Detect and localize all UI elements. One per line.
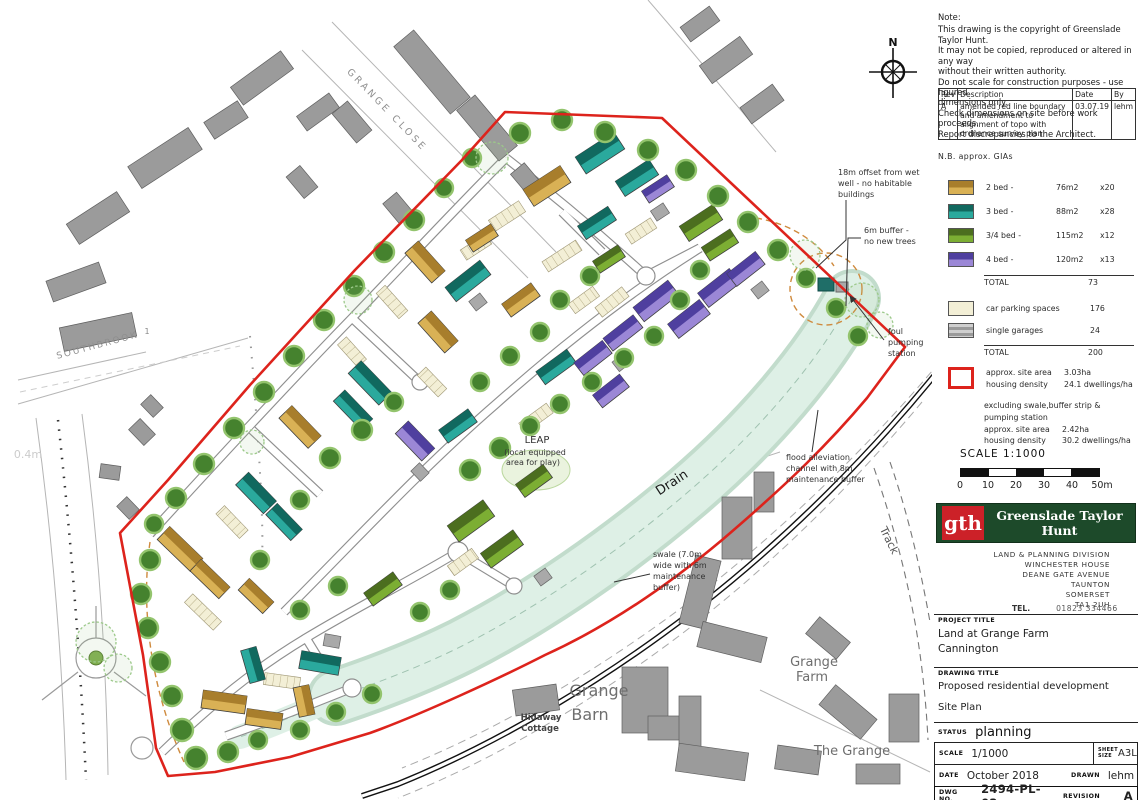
tree xyxy=(551,291,569,309)
tree xyxy=(162,686,182,706)
house-34bed xyxy=(364,572,403,606)
parking-total-row: TOTAL 200 xyxy=(984,345,1134,357)
tree xyxy=(194,454,214,474)
revision-label: REVISION xyxy=(1063,793,1100,800)
map-label: LEAP xyxy=(525,435,550,446)
status-row: STATUS planning xyxy=(934,722,1138,742)
tree xyxy=(385,393,403,411)
existing-tree-icon xyxy=(240,430,264,454)
tick-30: 30 xyxy=(1038,480,1050,491)
parking-strip xyxy=(488,201,525,232)
garage-swatch xyxy=(948,323,974,338)
tree xyxy=(166,488,186,508)
tree xyxy=(150,652,170,672)
density-label: housing density xyxy=(986,379,1064,391)
address-line: DEANE GATE AVENUE xyxy=(993,570,1110,580)
tree xyxy=(327,703,345,721)
2bed-swatch xyxy=(948,180,974,195)
house-34bed xyxy=(701,229,738,261)
garage xyxy=(650,203,669,221)
map-label: wide with 6m xyxy=(653,561,707,570)
tree xyxy=(145,515,163,533)
site-boundary-swatch xyxy=(948,367,974,389)
drawing-title-line2: Site Plan xyxy=(938,702,1134,713)
drawing-title-label: DRAWING TITLE xyxy=(938,670,1134,677)
existing-building xyxy=(394,30,470,114)
house-4bed xyxy=(395,421,434,461)
34bed-area: 115m2 xyxy=(1056,231,1100,240)
map-label: Barn xyxy=(571,705,608,724)
tree xyxy=(691,261,709,279)
2bed-label: 2 bed - xyxy=(986,183,1056,192)
legend-row-3bed: 3 bed - 88m2 x28 xyxy=(938,199,1136,223)
tree xyxy=(363,685,381,703)
garage xyxy=(469,293,487,311)
tree xyxy=(140,550,160,570)
34bed-label: 3/4 bed - xyxy=(986,231,1056,240)
house-3bed xyxy=(236,472,277,513)
dwellings-total-label: TOTAL xyxy=(984,278,1088,287)
existing-building xyxy=(740,84,784,124)
existing-building xyxy=(286,165,318,198)
legend: N.B. approx. GIAs 2 bed - 76m2 x20 3 bed… xyxy=(938,152,1136,447)
tick-10: 10 xyxy=(982,480,994,491)
dwg-number-row: DWG NO. 2494-PL-02 REVISION A xyxy=(934,786,1138,800)
date-col-header: Date xyxy=(1073,89,1112,101)
tree xyxy=(615,349,633,367)
map-label: 18m offset from wet xyxy=(838,168,919,177)
map-label: buffer) xyxy=(653,583,680,592)
parking-label: car parking spaces xyxy=(986,304,1090,313)
tree xyxy=(797,269,815,287)
excluding-note: excluding swale,buffer strip & pumping s… xyxy=(984,400,1136,423)
project-title-section: PROJECT TITLE Land at Grange Farm Cannin… xyxy=(934,614,1138,667)
tree xyxy=(435,179,453,197)
tree xyxy=(531,323,549,341)
tree xyxy=(501,347,519,365)
tree xyxy=(218,742,238,762)
existing-building xyxy=(66,192,129,245)
tree xyxy=(291,601,309,619)
site-area-value: 3.03ha xyxy=(1064,367,1091,379)
parking-strip xyxy=(216,506,248,539)
existing-building xyxy=(204,101,248,140)
4bed-label: 4 bed - xyxy=(986,255,1056,264)
scale-row: SCALE 1/1000 SHEET SIZE A3L xyxy=(934,742,1138,764)
parking-strip xyxy=(568,286,599,313)
excl-site-area-value: 2.42ha xyxy=(1062,424,1089,436)
map-label: maintenance xyxy=(653,572,705,581)
map-label: swale (7.0m xyxy=(653,550,702,559)
gth-abbr: gth xyxy=(944,511,982,535)
density-row: housing density 24.1 dwellings/ha xyxy=(986,379,1133,391)
rev-col-header: Rev xyxy=(939,89,958,101)
by-cell: lehm xyxy=(1112,101,1136,140)
tree xyxy=(254,382,274,402)
existing-building xyxy=(297,93,340,131)
map-label: Hidaway xyxy=(521,713,562,723)
sheet-size-value: A3L xyxy=(1118,748,1137,759)
map-label: 0.4m xyxy=(14,448,42,461)
existing-building xyxy=(129,419,156,446)
tree xyxy=(827,299,845,317)
date-value: October 2018 xyxy=(967,770,1039,782)
existing-building xyxy=(46,262,106,302)
by-col-header: By xyxy=(1112,89,1136,101)
map-label: 1 xyxy=(144,327,149,336)
garage xyxy=(751,281,769,299)
existing-building xyxy=(141,395,164,418)
excl-density-label: housing density xyxy=(984,435,1062,447)
legend-row-2bed: 2 bed - 76m2 x20 xyxy=(938,175,1136,199)
dwellings-total-value: 73 xyxy=(1088,278,1098,287)
existing-building xyxy=(679,696,701,748)
map-label: foul xyxy=(888,327,903,336)
tree xyxy=(411,603,429,621)
parking-total-value: 200 xyxy=(1088,348,1103,357)
tick-40: 40 xyxy=(1066,480,1078,491)
excluding-block: excluding swale,buffer strip & pumping s… xyxy=(984,400,1136,447)
map-label: area for play) xyxy=(506,458,560,467)
map-label: Grange xyxy=(570,681,629,700)
parking-strip xyxy=(625,218,657,244)
parking-swatch xyxy=(948,301,974,316)
drawn-label: DRAWN xyxy=(1071,772,1100,779)
existing-building xyxy=(856,764,900,784)
density-value: 24.1 dwellings/ha xyxy=(1064,379,1133,391)
tree xyxy=(329,577,347,595)
dwg-number-value: 2494-PL-02 xyxy=(981,782,1055,800)
4bed-area: 120m2 xyxy=(1056,255,1100,264)
tree xyxy=(849,327,867,345)
scale-bar-ticks: 0 10 20 30 40 50m xyxy=(960,480,1100,492)
note-line: without their written authority. xyxy=(938,66,1136,76)
4bed-count: x13 xyxy=(1100,255,1130,264)
note-title: Note: xyxy=(938,12,1136,22)
map-label: station xyxy=(888,349,916,358)
note-line: It may not be copied, reproduced or alte… xyxy=(938,45,1136,66)
telephone-row: TEL. 01823 334466 xyxy=(1012,604,1136,613)
map-label: Cottage xyxy=(521,724,559,734)
desc-cell: amended red line boundary and amendment … xyxy=(958,101,1073,140)
excl-site-area-row: approx. site area 2.42ha xyxy=(984,424,1136,436)
map-canvas: GRANGE CLOSESOUTHBROOK0.4m1DrainTrackGra… xyxy=(0,0,935,800)
scale-bar: SCALE 1:1000 0 10 20 30 40 50m xyxy=(960,448,1130,492)
tree xyxy=(768,240,788,260)
tree xyxy=(645,327,663,345)
date-cell: 03.07.19 xyxy=(1073,101,1112,140)
house-2bed xyxy=(502,283,541,317)
house-2bed xyxy=(418,311,458,353)
site-plan-map: GRANGE CLOSESOUTHBROOK0.4m1DrainTrackGra… xyxy=(0,0,935,800)
excl-density-row: housing density 30.2 dwellings/ha xyxy=(984,435,1136,447)
excl-density-value: 30.2 dwellings/ha xyxy=(1062,435,1131,447)
leader-line xyxy=(816,200,846,268)
tree xyxy=(374,242,394,262)
map-label: buildings xyxy=(838,190,874,199)
existing-building xyxy=(512,684,559,716)
tree xyxy=(251,551,269,569)
3bed-count: x28 xyxy=(1100,207,1130,216)
existing-tree-icon xyxy=(476,142,508,174)
tree xyxy=(138,618,158,638)
3bed-swatch xyxy=(948,204,974,219)
tel-value: 01823 334466 xyxy=(1056,604,1118,613)
project-title-line2: Cannington xyxy=(938,642,1134,657)
date-label: DATE xyxy=(939,772,959,779)
existing-building xyxy=(889,694,919,742)
house-2bed xyxy=(190,559,230,598)
legend-heading: N.B. approx. GIAs xyxy=(938,152,1136,161)
parking-strip xyxy=(542,240,582,272)
revision-value: A xyxy=(1124,789,1133,800)
project-title-line1: Land at Grange Farm xyxy=(938,627,1134,642)
map-label: maintenance buffer xyxy=(786,475,866,484)
address-line: LAND & PLANNING DIVISION xyxy=(993,550,1110,560)
garage-count: 24 xyxy=(1090,326,1100,335)
revision-header-row: Rev Description Date By xyxy=(939,89,1136,101)
existing-tree-icon xyxy=(76,622,116,662)
4bed-swatch xyxy=(948,252,974,267)
map-label: Farm xyxy=(796,670,828,685)
parking-count: 176 xyxy=(1090,304,1105,313)
tree xyxy=(471,373,489,391)
tree xyxy=(291,491,309,509)
map-label: pumping xyxy=(888,338,923,347)
map-label: flood alleviation xyxy=(786,453,850,462)
existing-tree-icon xyxy=(344,286,372,314)
tree xyxy=(441,581,459,599)
north-arrow-icon xyxy=(869,48,917,98)
site-plan-sheet: { "colors": { "gold_dark":"#a87e2c","gol… xyxy=(0,0,1140,800)
site-area-row: approx. site area 3.03ha xyxy=(986,367,1133,379)
garage-row: single garages 24 xyxy=(938,319,1136,341)
existing-building xyxy=(819,685,877,740)
map-label: no new trees xyxy=(864,237,916,246)
existing-building xyxy=(699,36,752,83)
house-34bed xyxy=(481,530,524,568)
map-label: N xyxy=(888,36,897,49)
existing-building xyxy=(697,621,767,662)
tree xyxy=(521,417,539,435)
tree xyxy=(291,721,309,739)
house-2bed xyxy=(238,578,274,613)
tree xyxy=(284,346,304,366)
rev-cell: A xyxy=(939,101,958,140)
address-line: WINCHESTER HOUSE xyxy=(993,560,1110,570)
map-label: Track xyxy=(877,524,902,557)
parking-strip xyxy=(184,594,221,630)
existing-building xyxy=(230,51,293,105)
house-34bed xyxy=(679,205,722,242)
excl-site-area-label: approx. site area xyxy=(984,424,1062,436)
existing-building xyxy=(680,6,720,42)
parking-total-label: TOTAL xyxy=(984,348,1088,357)
tree xyxy=(595,122,615,142)
legend-row-34bed: 3/4 bed - 115m2 x12 xyxy=(938,223,1136,247)
parking-strip xyxy=(263,673,300,690)
map-label: The Grange xyxy=(813,744,890,759)
drawing-title-section: DRAWING TITLE Proposed residential devel… xyxy=(934,667,1138,722)
map-label: Grange xyxy=(790,655,838,670)
scale-field-value: 1/1000 xyxy=(971,748,1008,760)
3bed-area: 88m2 xyxy=(1056,207,1100,216)
tree xyxy=(460,460,480,480)
2bed-area: 76m2 xyxy=(1056,183,1100,192)
existing-building xyxy=(99,464,121,481)
tree xyxy=(671,291,689,309)
map-label: 6m buffer - xyxy=(864,226,909,235)
tree xyxy=(551,395,569,413)
tree xyxy=(638,140,658,160)
existing-tree-icon xyxy=(104,654,132,682)
scale-label: SCALE 1:1000 xyxy=(960,448,1130,460)
legend-row-4bed: 4 bed - 120m2 x13 xyxy=(938,247,1136,271)
tel-label: TEL. xyxy=(1012,604,1030,613)
tree xyxy=(224,418,244,438)
tree xyxy=(171,719,193,741)
tree xyxy=(676,160,696,180)
map-label: well - no habitable xyxy=(838,179,912,188)
existing-building xyxy=(806,617,851,660)
drawing-title-line1: Proposed residential development xyxy=(938,681,1134,692)
company-name: Greenslade Taylor Hunt xyxy=(984,508,1135,538)
project-title-label: PROJECT TITLE xyxy=(938,617,1134,624)
34bed-count: x12 xyxy=(1100,231,1130,240)
3bed-label: 3 bed - xyxy=(986,207,1056,216)
garage-label: single garages xyxy=(986,326,1090,335)
house-2bed xyxy=(279,406,321,449)
parking-row: car parking spaces 176 xyxy=(938,297,1136,319)
address-line: SOMERSET xyxy=(993,590,1110,600)
scale-field-label: SCALE xyxy=(939,750,963,757)
tree xyxy=(581,267,599,285)
tree xyxy=(510,123,530,143)
revision-table: Rev Description Date By A amended red li… xyxy=(938,88,1136,140)
dwellings-total-row: TOTAL 73 xyxy=(984,275,1134,287)
note-line: This drawing is the copyright of Greensl… xyxy=(938,24,1136,45)
site-area-label: approx. site area xyxy=(986,367,1064,379)
company-address: LAND & PLANNING DIVISION WINCHESTER HOUS… xyxy=(993,550,1110,610)
tick-20: 20 xyxy=(1010,480,1022,491)
title-block: PROJECT TITLE Land at Grange Farm Cannin… xyxy=(934,614,1138,800)
tree xyxy=(708,186,728,206)
tree xyxy=(185,747,207,769)
2bed-count: x20 xyxy=(1100,183,1130,192)
existing-building xyxy=(128,127,203,188)
tree xyxy=(404,210,424,230)
site-area-block: approx. site area 3.03ha housing density… xyxy=(938,367,1136,390)
leader-line xyxy=(812,410,818,452)
sheet-size-cell: SHEET SIZE A3L xyxy=(1093,743,1137,764)
garage xyxy=(323,634,341,649)
dwg-number-label: DWG NO. xyxy=(939,789,973,800)
revision-row: A amended red line boundary and amendmen… xyxy=(939,101,1136,140)
tick-0: 0 xyxy=(957,480,963,491)
tick-50: 50m xyxy=(1091,480,1112,491)
house-3bed xyxy=(299,651,342,676)
drawn-value: lehm xyxy=(1108,770,1134,782)
house-3bed xyxy=(445,260,491,301)
tree xyxy=(249,731,267,749)
map-label: (local equipped xyxy=(504,448,566,457)
existing-building xyxy=(675,743,748,780)
scale-bar-segments xyxy=(960,468,1100,477)
gth-logo: gth Greenslade Taylor Hunt xyxy=(936,503,1136,543)
gth-logo-mark: gth xyxy=(942,506,984,540)
status-label: STATUS xyxy=(938,729,967,736)
tree xyxy=(738,212,758,232)
existing-building xyxy=(754,472,774,512)
title-panel: Note: This drawing is the copyright of G… xyxy=(932,0,1140,800)
house-4bed xyxy=(603,315,643,351)
status-value: planning xyxy=(975,725,1031,740)
parking-strip xyxy=(376,285,408,318)
tree xyxy=(583,373,601,391)
house-34bed xyxy=(447,500,494,542)
sheet-size-label: SHEET SIZE xyxy=(1098,748,1116,759)
tree xyxy=(352,420,372,440)
tree xyxy=(320,448,340,468)
house-4bed xyxy=(574,341,612,376)
34bed-swatch xyxy=(948,228,974,243)
desc-col-header: Description xyxy=(958,89,1073,101)
house-4bed xyxy=(727,252,765,287)
map-label: channel with 8m xyxy=(786,464,853,473)
address-line: TAUNTON xyxy=(993,580,1110,590)
